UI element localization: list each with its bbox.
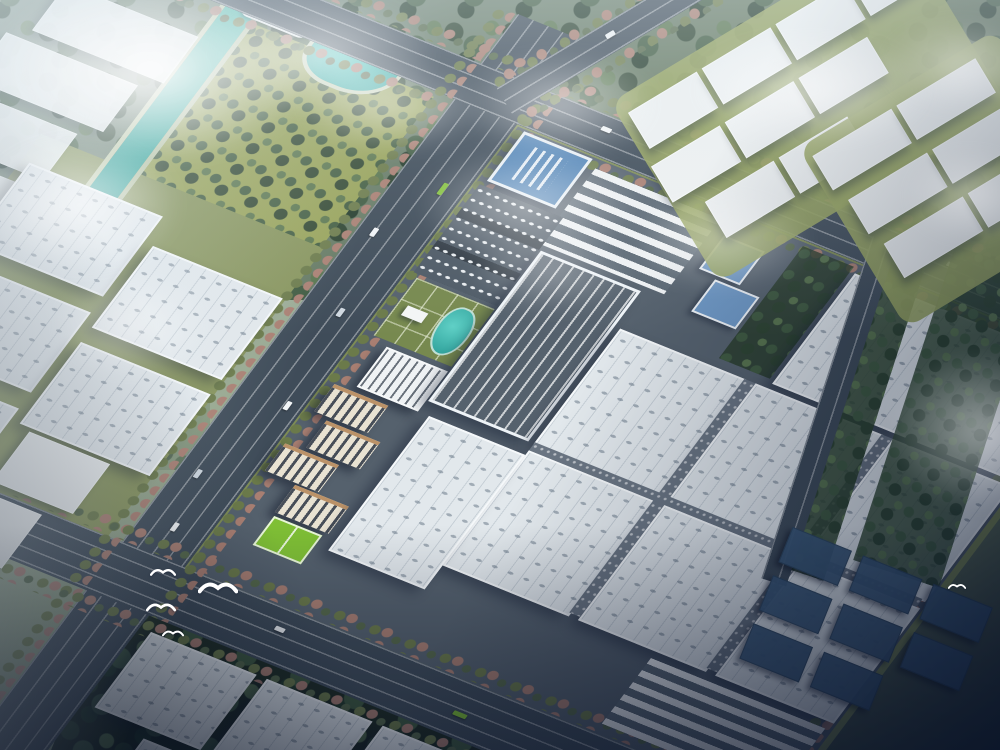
garden-pavilion xyxy=(401,305,429,323)
bird-icon xyxy=(146,600,176,613)
aerial-rendering-stage xyxy=(0,0,1000,750)
blue-roof-shed xyxy=(759,575,833,634)
bird-icon xyxy=(948,582,966,590)
bird-icon xyxy=(150,566,176,577)
cloud xyxy=(260,40,520,170)
blue-roof-shed xyxy=(810,652,884,711)
blue-roof-shed xyxy=(739,623,813,682)
blue-roof-shed xyxy=(829,604,903,663)
cloud xyxy=(20,250,240,400)
cloud xyxy=(430,210,670,330)
blue-roof-shed xyxy=(919,584,993,643)
bird-icon xyxy=(162,628,184,637)
bird-icon xyxy=(198,578,238,595)
blue-roof-shed xyxy=(900,632,974,691)
blue-roof-shed xyxy=(778,527,852,586)
blue-roof-shed xyxy=(849,555,923,614)
